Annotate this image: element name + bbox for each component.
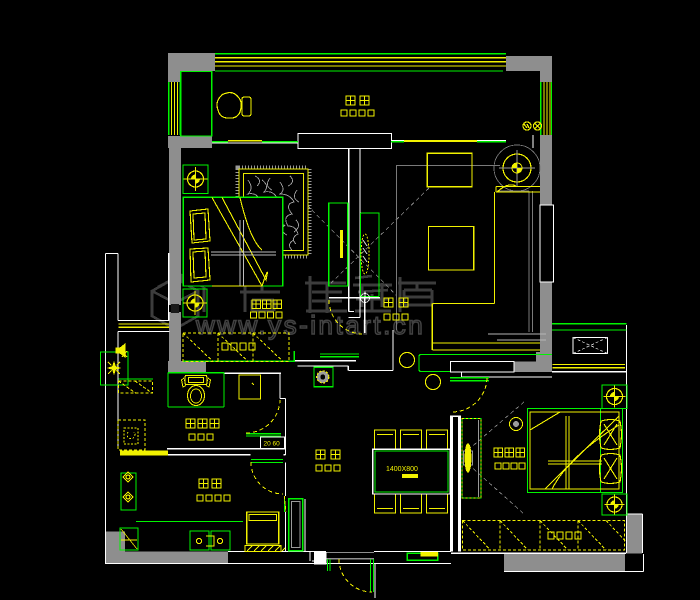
svg-text:www.ys-intart.cn: www.ys-intart.cn (195, 310, 425, 340)
svg-text:1400X800: 1400X800 (386, 466, 418, 473)
svg-text:20 60: 20 60 (264, 441, 281, 448)
